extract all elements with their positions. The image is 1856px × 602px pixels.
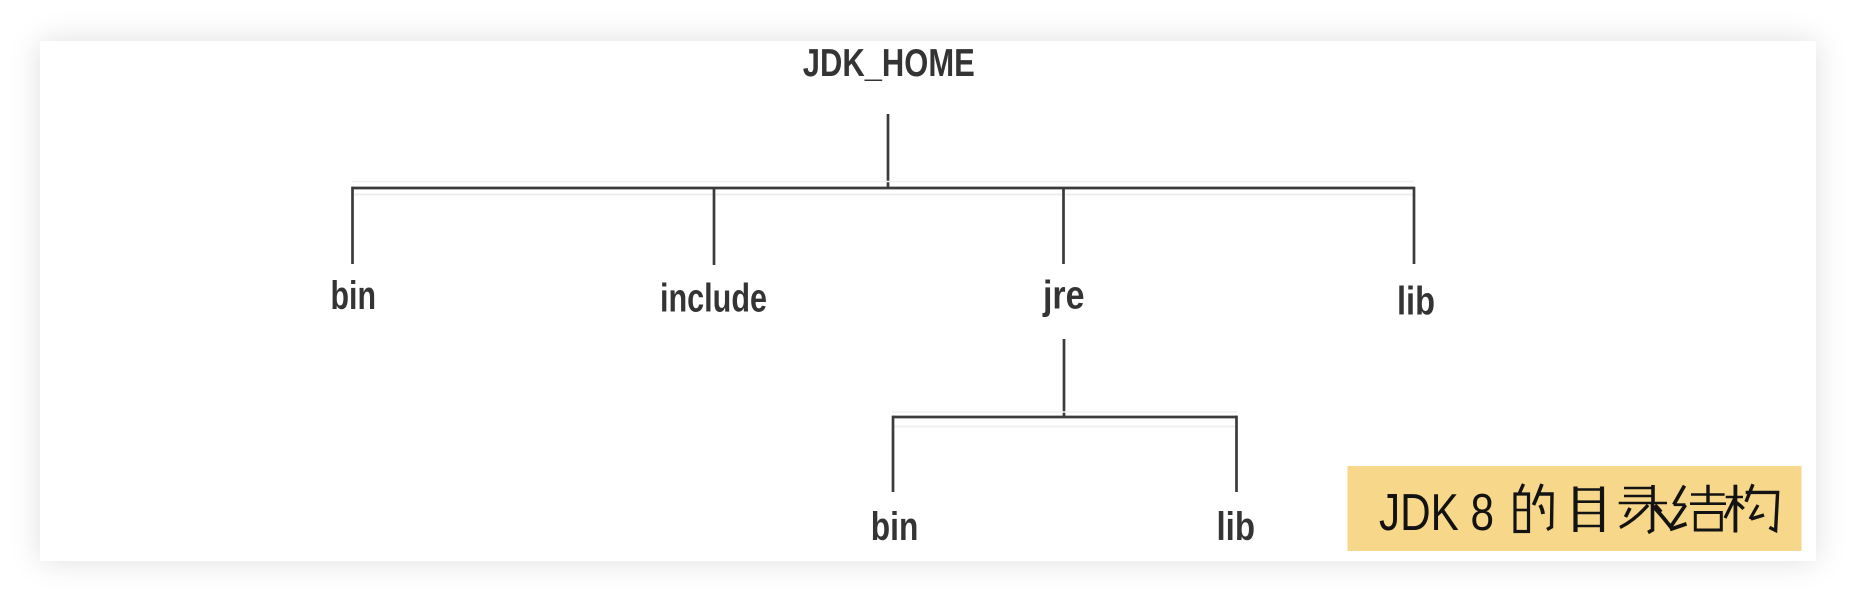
- svg-text:JDK_HOME: JDK_HOME: [803, 42, 975, 85]
- svg-text:lib: lib: [1217, 505, 1256, 549]
- svg-text:bin: bin: [331, 274, 377, 318]
- svg-text:include: include: [660, 277, 767, 321]
- svg-text:bin: bin: [871, 505, 919, 549]
- svg-text:lib: lib: [1397, 280, 1435, 324]
- svg-text:JDK 8: JDK 8: [1379, 484, 1494, 542]
- svg-text:jre: jre: [1042, 274, 1084, 318]
